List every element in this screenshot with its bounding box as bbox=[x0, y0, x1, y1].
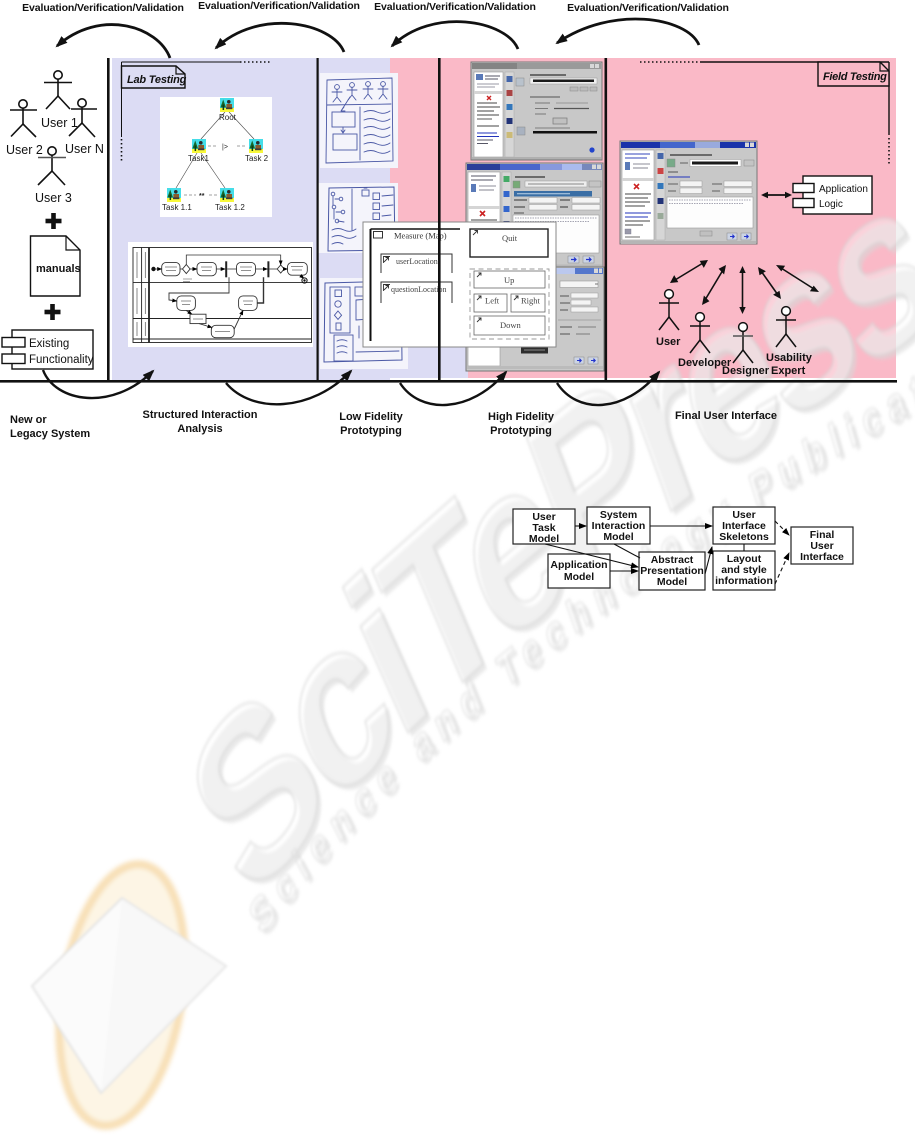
svg-text:User 1: User 1 bbox=[41, 116, 78, 130]
svg-text:Functionality: Functionality bbox=[29, 354, 94, 366]
svg-text:Evaluation/Verification/Valida: Evaluation/Verification/Validation bbox=[22, 2, 184, 14]
svg-text:Field Testing: Field Testing bbox=[823, 71, 887, 83]
svg-text:Legacy System: Legacy System bbox=[10, 428, 90, 440]
svg-text:Down: Down bbox=[500, 320, 522, 330]
svg-text:userLocation: userLocation bbox=[396, 257, 438, 266]
svg-text:Structured Interaction: Structured Interaction bbox=[143, 409, 258, 421]
svg-text:Left: Left bbox=[485, 296, 500, 306]
svg-text:Low Fidelity: Low Fidelity bbox=[339, 411, 403, 423]
svg-text:Skeletons: Skeletons bbox=[719, 531, 769, 543]
svg-text:Final User Interface: Final User Interface bbox=[675, 410, 777, 422]
svg-text:Analysis: Analysis bbox=[177, 423, 222, 435]
svg-text:High Fidelity: High Fidelity bbox=[488, 411, 555, 423]
svg-text:Evaluation/Verification/Valida: Evaluation/Verification/Validation bbox=[198, 0, 360, 12]
svg-text:information: information bbox=[715, 575, 773, 587]
svg-text:Existing: Existing bbox=[29, 338, 69, 350]
svg-text:Model: Model bbox=[603, 531, 633, 543]
svg-text:Logic: Logic bbox=[819, 199, 843, 210]
svg-text:Right: Right bbox=[521, 296, 541, 306]
svg-text:User N: User N bbox=[65, 142, 104, 156]
svg-text:Model: Model bbox=[657, 576, 687, 588]
svg-text:Interface: Interface bbox=[800, 551, 844, 563]
svg-text:manuals: manuals bbox=[36, 263, 81, 275]
svg-text:New or: New or bbox=[10, 414, 47, 426]
svg-text:|>: |> bbox=[222, 144, 228, 151]
svg-text:Task1: Task1 bbox=[188, 154, 209, 163]
svg-text:**: ** bbox=[199, 193, 205, 200]
svg-text:Task 1.1: Task 1.1 bbox=[162, 203, 192, 212]
svg-text:User 2: User 2 bbox=[6, 143, 43, 157]
svg-text:Task 2: Task 2 bbox=[245, 154, 269, 163]
svg-text:Designer: Designer bbox=[722, 365, 770, 377]
svg-text:Root: Root bbox=[219, 113, 237, 122]
svg-text:Application: Application bbox=[550, 559, 607, 571]
svg-text:Lab Testing: Lab Testing bbox=[127, 74, 187, 86]
svg-text:Expert: Expert bbox=[771, 365, 806, 377]
svg-text:Evaluation/Verification/Valida: Evaluation/Verification/Validation bbox=[374, 1, 536, 13]
svg-text:Task 1.2: Task 1.2 bbox=[215, 203, 245, 212]
svg-text:Up: Up bbox=[504, 275, 514, 285]
svg-text:Application: Application bbox=[819, 184, 868, 195]
svg-text:Model: Model bbox=[564, 571, 594, 583]
svg-text:Usability: Usability bbox=[766, 352, 813, 364]
svg-text:Quit: Quit bbox=[502, 233, 518, 243]
svg-text:Model: Model bbox=[529, 533, 559, 545]
svg-text:User 3: User 3 bbox=[35, 191, 72, 205]
svg-text:Prototyping: Prototyping bbox=[340, 425, 402, 437]
svg-text:Prototyping: Prototyping bbox=[490, 425, 552, 437]
svg-text:User: User bbox=[656, 336, 681, 348]
svg-text:Evaluation/Verification/Valida: Evaluation/Verification/Validation bbox=[567, 2, 729, 14]
